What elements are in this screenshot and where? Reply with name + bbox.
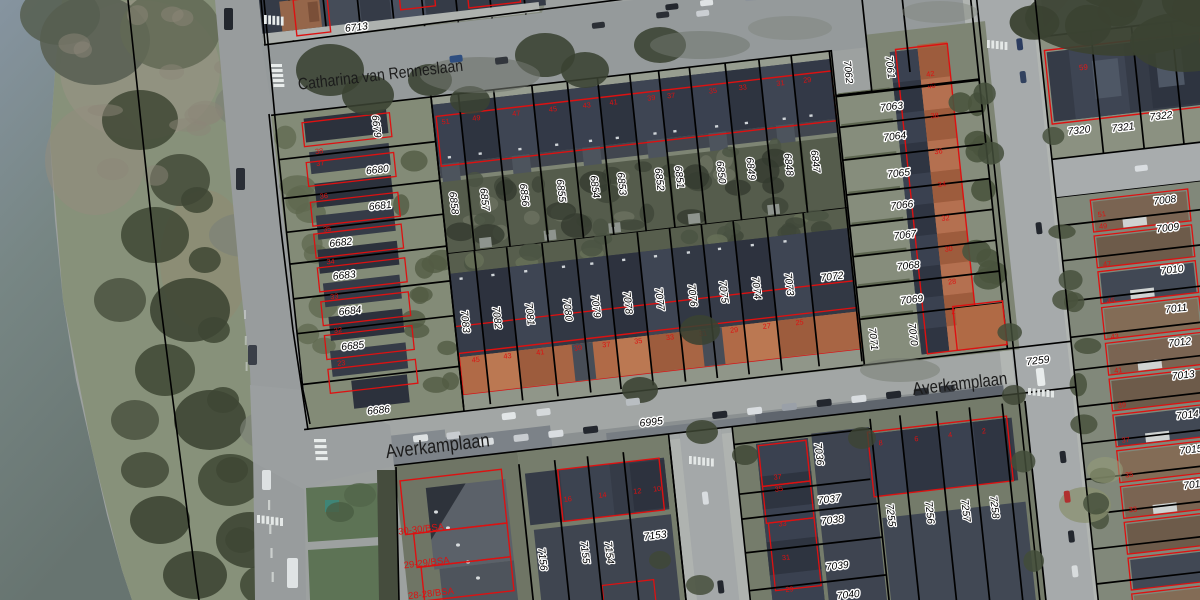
svg-text:45: 45 bbox=[471, 355, 480, 365]
svg-text:12: 12 bbox=[633, 486, 642, 496]
svg-text:41: 41 bbox=[536, 347, 545, 357]
svg-text:43: 43 bbox=[503, 351, 512, 361]
svg-text:33: 33 bbox=[1128, 504, 1137, 514]
svg-text:43: 43 bbox=[582, 100, 591, 110]
svg-text:35: 35 bbox=[1125, 470, 1134, 480]
svg-text:27: 27 bbox=[762, 321, 771, 331]
svg-text:33: 33 bbox=[738, 82, 747, 92]
svg-text:49: 49 bbox=[472, 113, 481, 123]
svg-text:29: 29 bbox=[730, 325, 739, 335]
svg-text:49: 49 bbox=[1099, 221, 1108, 231]
svg-text:36: 36 bbox=[319, 191, 328, 201]
svg-text:28: 28 bbox=[948, 277, 957, 287]
svg-text:42: 42 bbox=[926, 69, 935, 79]
svg-text:35: 35 bbox=[634, 336, 643, 346]
svg-text:29: 29 bbox=[785, 584, 794, 594]
svg-text:35: 35 bbox=[323, 224, 332, 234]
svg-text:36: 36 bbox=[934, 146, 943, 156]
svg-text:45: 45 bbox=[1106, 296, 1115, 306]
svg-text:33: 33 bbox=[665, 332, 674, 342]
svg-text:33: 33 bbox=[330, 291, 339, 301]
svg-text:35: 35 bbox=[774, 484, 783, 494]
svg-text:37: 37 bbox=[602, 340, 611, 350]
svg-text:23: 23 bbox=[337, 358, 346, 368]
svg-text:29: 29 bbox=[803, 75, 812, 85]
svg-text:41: 41 bbox=[609, 97, 618, 107]
svg-text:39: 39 bbox=[1117, 400, 1126, 410]
svg-text:37: 37 bbox=[1121, 435, 1130, 445]
svg-text:16: 16 bbox=[563, 494, 572, 504]
svg-text:7040: 7040 bbox=[836, 589, 860, 600]
svg-text:32: 32 bbox=[941, 213, 950, 223]
svg-text:32: 32 bbox=[333, 325, 342, 335]
svg-text:31: 31 bbox=[781, 552, 790, 562]
svg-text:39: 39 bbox=[573, 343, 582, 353]
svg-text:51: 51 bbox=[441, 117, 450, 127]
svg-text:59: 59 bbox=[1079, 62, 1089, 72]
svg-text:43: 43 bbox=[1110, 331, 1119, 341]
svg-text:30: 30 bbox=[944, 244, 953, 254]
svg-text:37: 37 bbox=[316, 158, 325, 168]
svg-text:39: 39 bbox=[647, 93, 656, 103]
svg-text:7015: 7015 bbox=[1179, 444, 1200, 458]
svg-text:35: 35 bbox=[708, 86, 717, 96]
svg-text:41: 41 bbox=[1114, 365, 1123, 375]
svg-text:7016: 7016 bbox=[1183, 478, 1200, 492]
svg-text:34: 34 bbox=[937, 179, 946, 189]
svg-text:47: 47 bbox=[512, 108, 521, 118]
svg-text:31: 31 bbox=[776, 78, 785, 88]
svg-text:38: 38 bbox=[315, 146, 324, 156]
svg-text:37: 37 bbox=[667, 91, 676, 101]
svg-text:25: 25 bbox=[795, 317, 804, 327]
svg-text:34: 34 bbox=[326, 257, 335, 267]
svg-text:51: 51 bbox=[1097, 209, 1106, 219]
svg-text:47: 47 bbox=[1103, 259, 1112, 269]
svg-text:33: 33 bbox=[778, 519, 787, 529]
svg-text:10: 10 bbox=[653, 484, 662, 494]
svg-text:38: 38 bbox=[930, 111, 939, 121]
svg-text:37: 37 bbox=[773, 472, 782, 482]
svg-text:45: 45 bbox=[548, 104, 557, 114]
svg-text:14: 14 bbox=[598, 490, 607, 500]
